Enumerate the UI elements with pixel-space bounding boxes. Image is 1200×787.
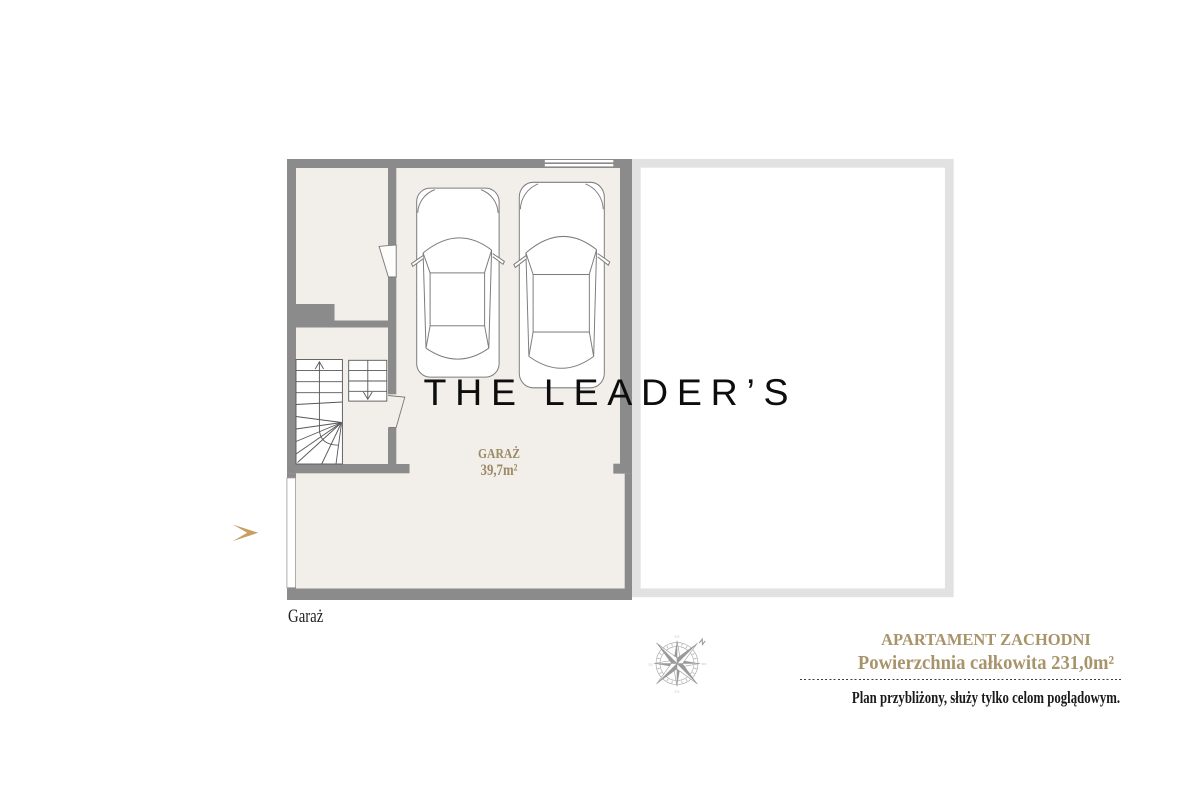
svg-text:315: 315 [701, 662, 706, 666]
svg-text:315: 315 [674, 690, 679, 694]
svg-text:315: 315 [674, 635, 679, 639]
svg-text:315: 315 [648, 663, 653, 667]
